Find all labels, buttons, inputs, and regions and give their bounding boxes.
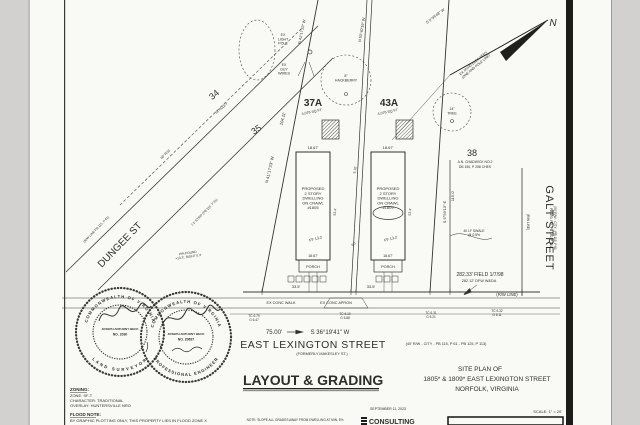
- sheet-border-right: [566, 0, 573, 425]
- dim-width-43a: 18.67': [383, 145, 394, 150]
- site-plan-drawing: COMMONWEALTH OF VIRGINIA LAND SURVEYOR J…: [0, 0, 640, 425]
- seal-number: NO. 20697: [178, 338, 195, 342]
- walk-note: EX CONC WALK: [267, 301, 296, 305]
- drawing-title: LAYOUT & GRADING: [243, 372, 383, 388]
- logo-bar-icon: [361, 417, 367, 419]
- logo-bar-icon: [361, 420, 367, 422]
- lot-38-owner: A.N. CHADWICK NO.2: [458, 160, 493, 164]
- lot-38-label: 38: [467, 148, 477, 158]
- field-dim-2: 282.12' DFW W&DA: [462, 279, 497, 283]
- site-plan-of-line: SITE PLAN OF: [458, 366, 502, 373]
- plan-date: SEPTEMBER 11, 2023: [370, 407, 406, 411]
- consulting-logo: CONSULTING: [361, 417, 415, 425]
- title-underline-2: [243, 391, 379, 392]
- flood-note-heading: FLOOD NOTE:: [70, 412, 101, 417]
- title-underline-1: [243, 388, 379, 389]
- hatched-structure-43a: [396, 120, 413, 139]
- paper-right-edge: [611, 0, 612, 425]
- lot-38-deed: DB 150, P 258 CHES: [459, 165, 492, 169]
- dim-porch-37a: 18.67': [308, 254, 318, 258]
- north-label: N: [549, 18, 557, 29]
- tc-elev-1: TC 6.79G 6.47: [248, 314, 260, 322]
- tc-elev-2: TC 6.10G 5.88: [339, 312, 351, 320]
- dim-width-37a: 18.67': [308, 145, 319, 150]
- galt-rw-note: (50' R/W - CITY - PB 115, P 61PB 150, P …: [549, 206, 557, 250]
- paper-edge-shadow: [28, 0, 30, 425]
- dim-115: 115.0': [450, 191, 455, 202]
- field-dim: 282.33' FIELD 1/7/98: [456, 272, 503, 278]
- sheet-border-left: [64, 0, 65, 425]
- porch-37a-label: PORCH: [306, 265, 320, 269]
- dim-75: 75.00': [266, 330, 282, 336]
- lexington-formerly-note: (FORMERLY MAKESLEY ST.): [296, 352, 348, 356]
- flood-note-text: BY GRAPHIC PLOTTING ONLY, THIS PROPERTY …: [70, 418, 207, 423]
- scanned-site-plan-page: COMMONWEALTH OF VIRGINIA LAND SURVEYOR J…: [0, 0, 640, 425]
- tc-elev-4: TC 6.32G 6.11: [491, 309, 503, 317]
- rw-line-vert-note: (R/W LINE): [526, 214, 530, 230]
- address-line: 1805* & 1809* EAST LEXINGTON STREET: [423, 376, 550, 383]
- zoning-heading: ZONING:: [70, 387, 89, 392]
- side-dim-43a: 53.4': [408, 208, 413, 216]
- side-dim-37a: 53.4': [333, 208, 338, 216]
- tc-elev-3: TC 6.31G 6.21: [425, 311, 437, 319]
- consulting-logo-text: CONSULTING: [369, 419, 415, 425]
- grading-note: NOTE: SLOPE ALL GRADES AWAY FROM DWELLIN…: [247, 418, 344, 422]
- dim-frontage-37a: 33.5': [292, 284, 301, 289]
- bearing-43a-east: S 5°59'13" E: [442, 200, 447, 223]
- seal-name: JOSEPH ANTHONY BECK: [167, 332, 205, 336]
- scale-note: SCALE: 1" = 20': [533, 409, 562, 414]
- porch-43a-label: PORCH: [381, 265, 395, 269]
- city-line: NORFOLK, VIRGINIA: [455, 386, 519, 393]
- lexington-rw-note: (40' R/W - CITY - PB 115, P 61 - PB 125,…: [406, 342, 488, 346]
- apron-note: EX CONC APRON: [320, 301, 352, 305]
- hatched-structure-37a: [322, 120, 339, 139]
- rw-line-note: (R/W LINE): [496, 292, 518, 297]
- seal-name: JOSEPH ANTHONY BECK: [101, 327, 139, 331]
- zoning-overlay: OVERLAY: HUNTERSVILLE NRO: [70, 403, 131, 408]
- dim-porch-43a: 18.67': [383, 254, 393, 258]
- street-east-lexington: EAST LEXINGTON STREET: [240, 339, 386, 351]
- seal-number: NO. 2030: [113, 333, 128, 337]
- bearing-lexington: S 36°19'41" W: [311, 330, 350, 336]
- dim-frontage-43a: 33.5': [367, 284, 376, 289]
